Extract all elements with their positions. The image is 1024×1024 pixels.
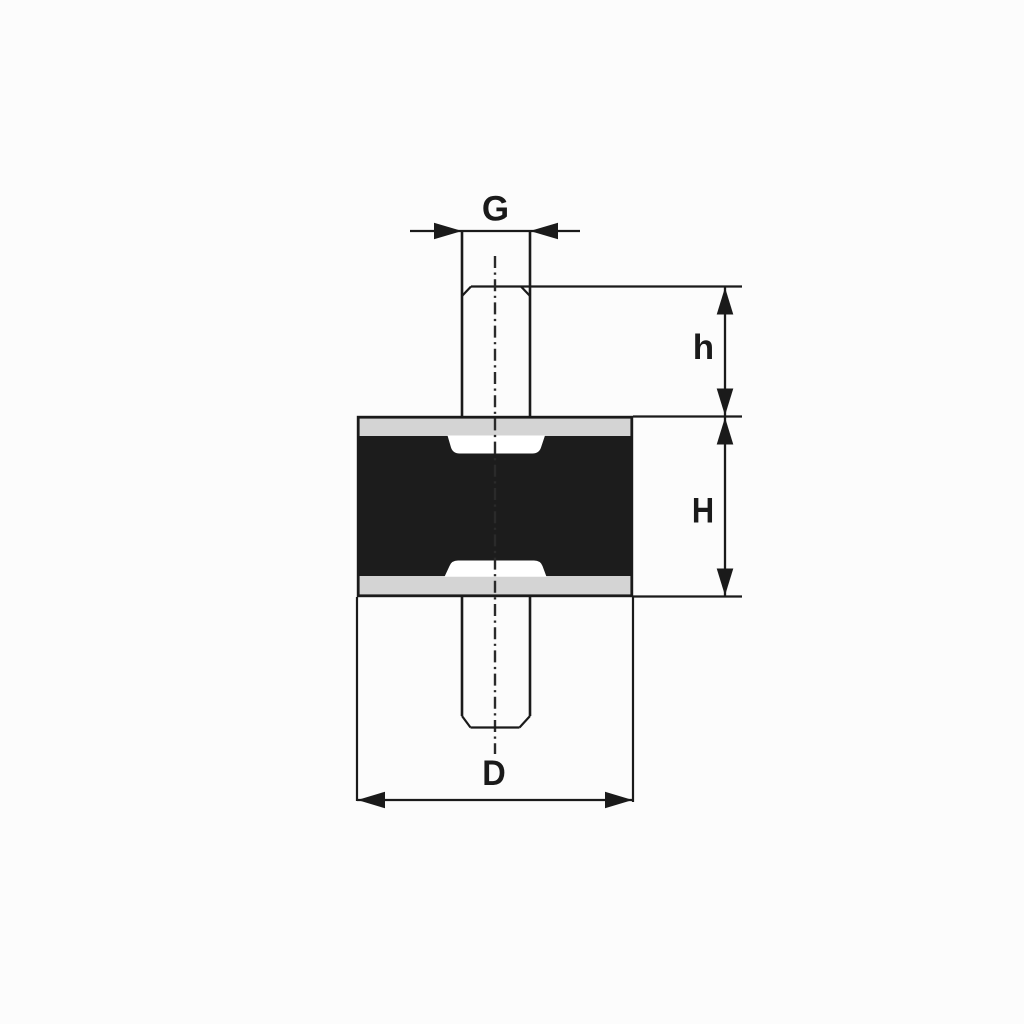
svg-text:H: H: [692, 490, 714, 529]
svg-text:G: G: [482, 190, 509, 229]
svg-text:D: D: [482, 754, 506, 793]
svg-text:h: h: [693, 328, 714, 367]
